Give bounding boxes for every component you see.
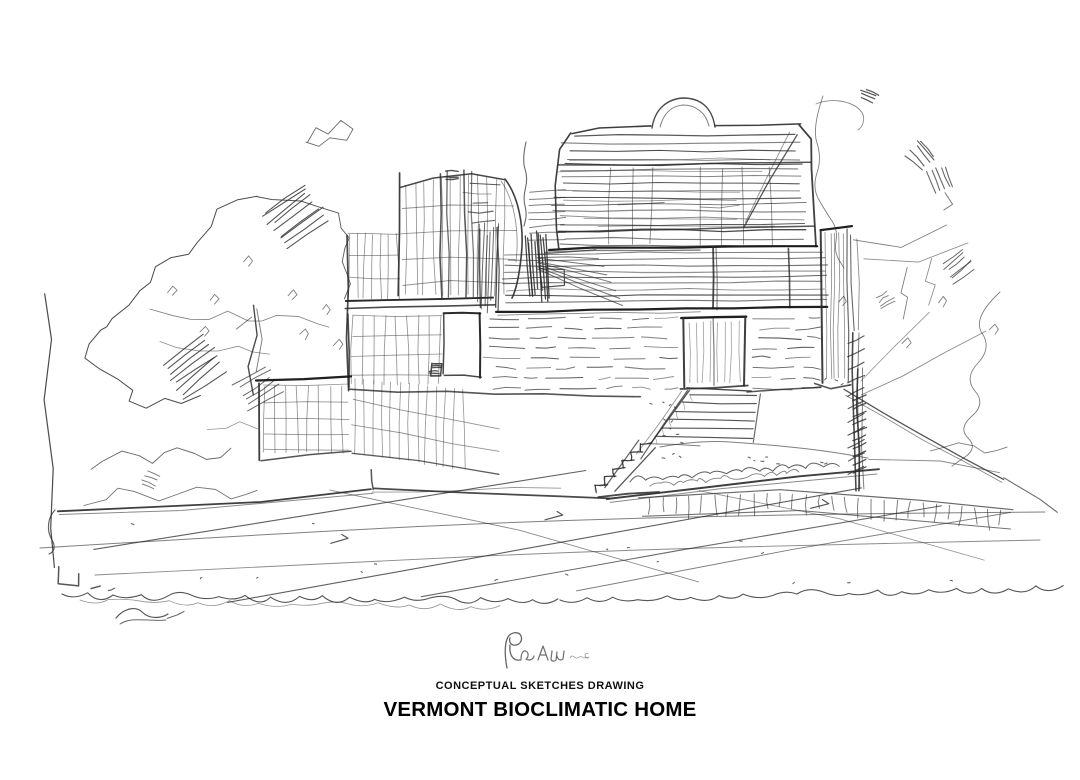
artist-signature (494, 628, 594, 670)
drawing-type-caption: CONCEPTUAL SKETCHES DRAWING (0, 680, 1080, 692)
sketch-board: CONCEPTUAL SKETCHES DRAWING VERMONT BIOC… (0, 0, 1080, 780)
sketch-canvas (0, 0, 1080, 634)
page-title: VERMONT BIOCLIMATIC HOME (0, 698, 1080, 722)
